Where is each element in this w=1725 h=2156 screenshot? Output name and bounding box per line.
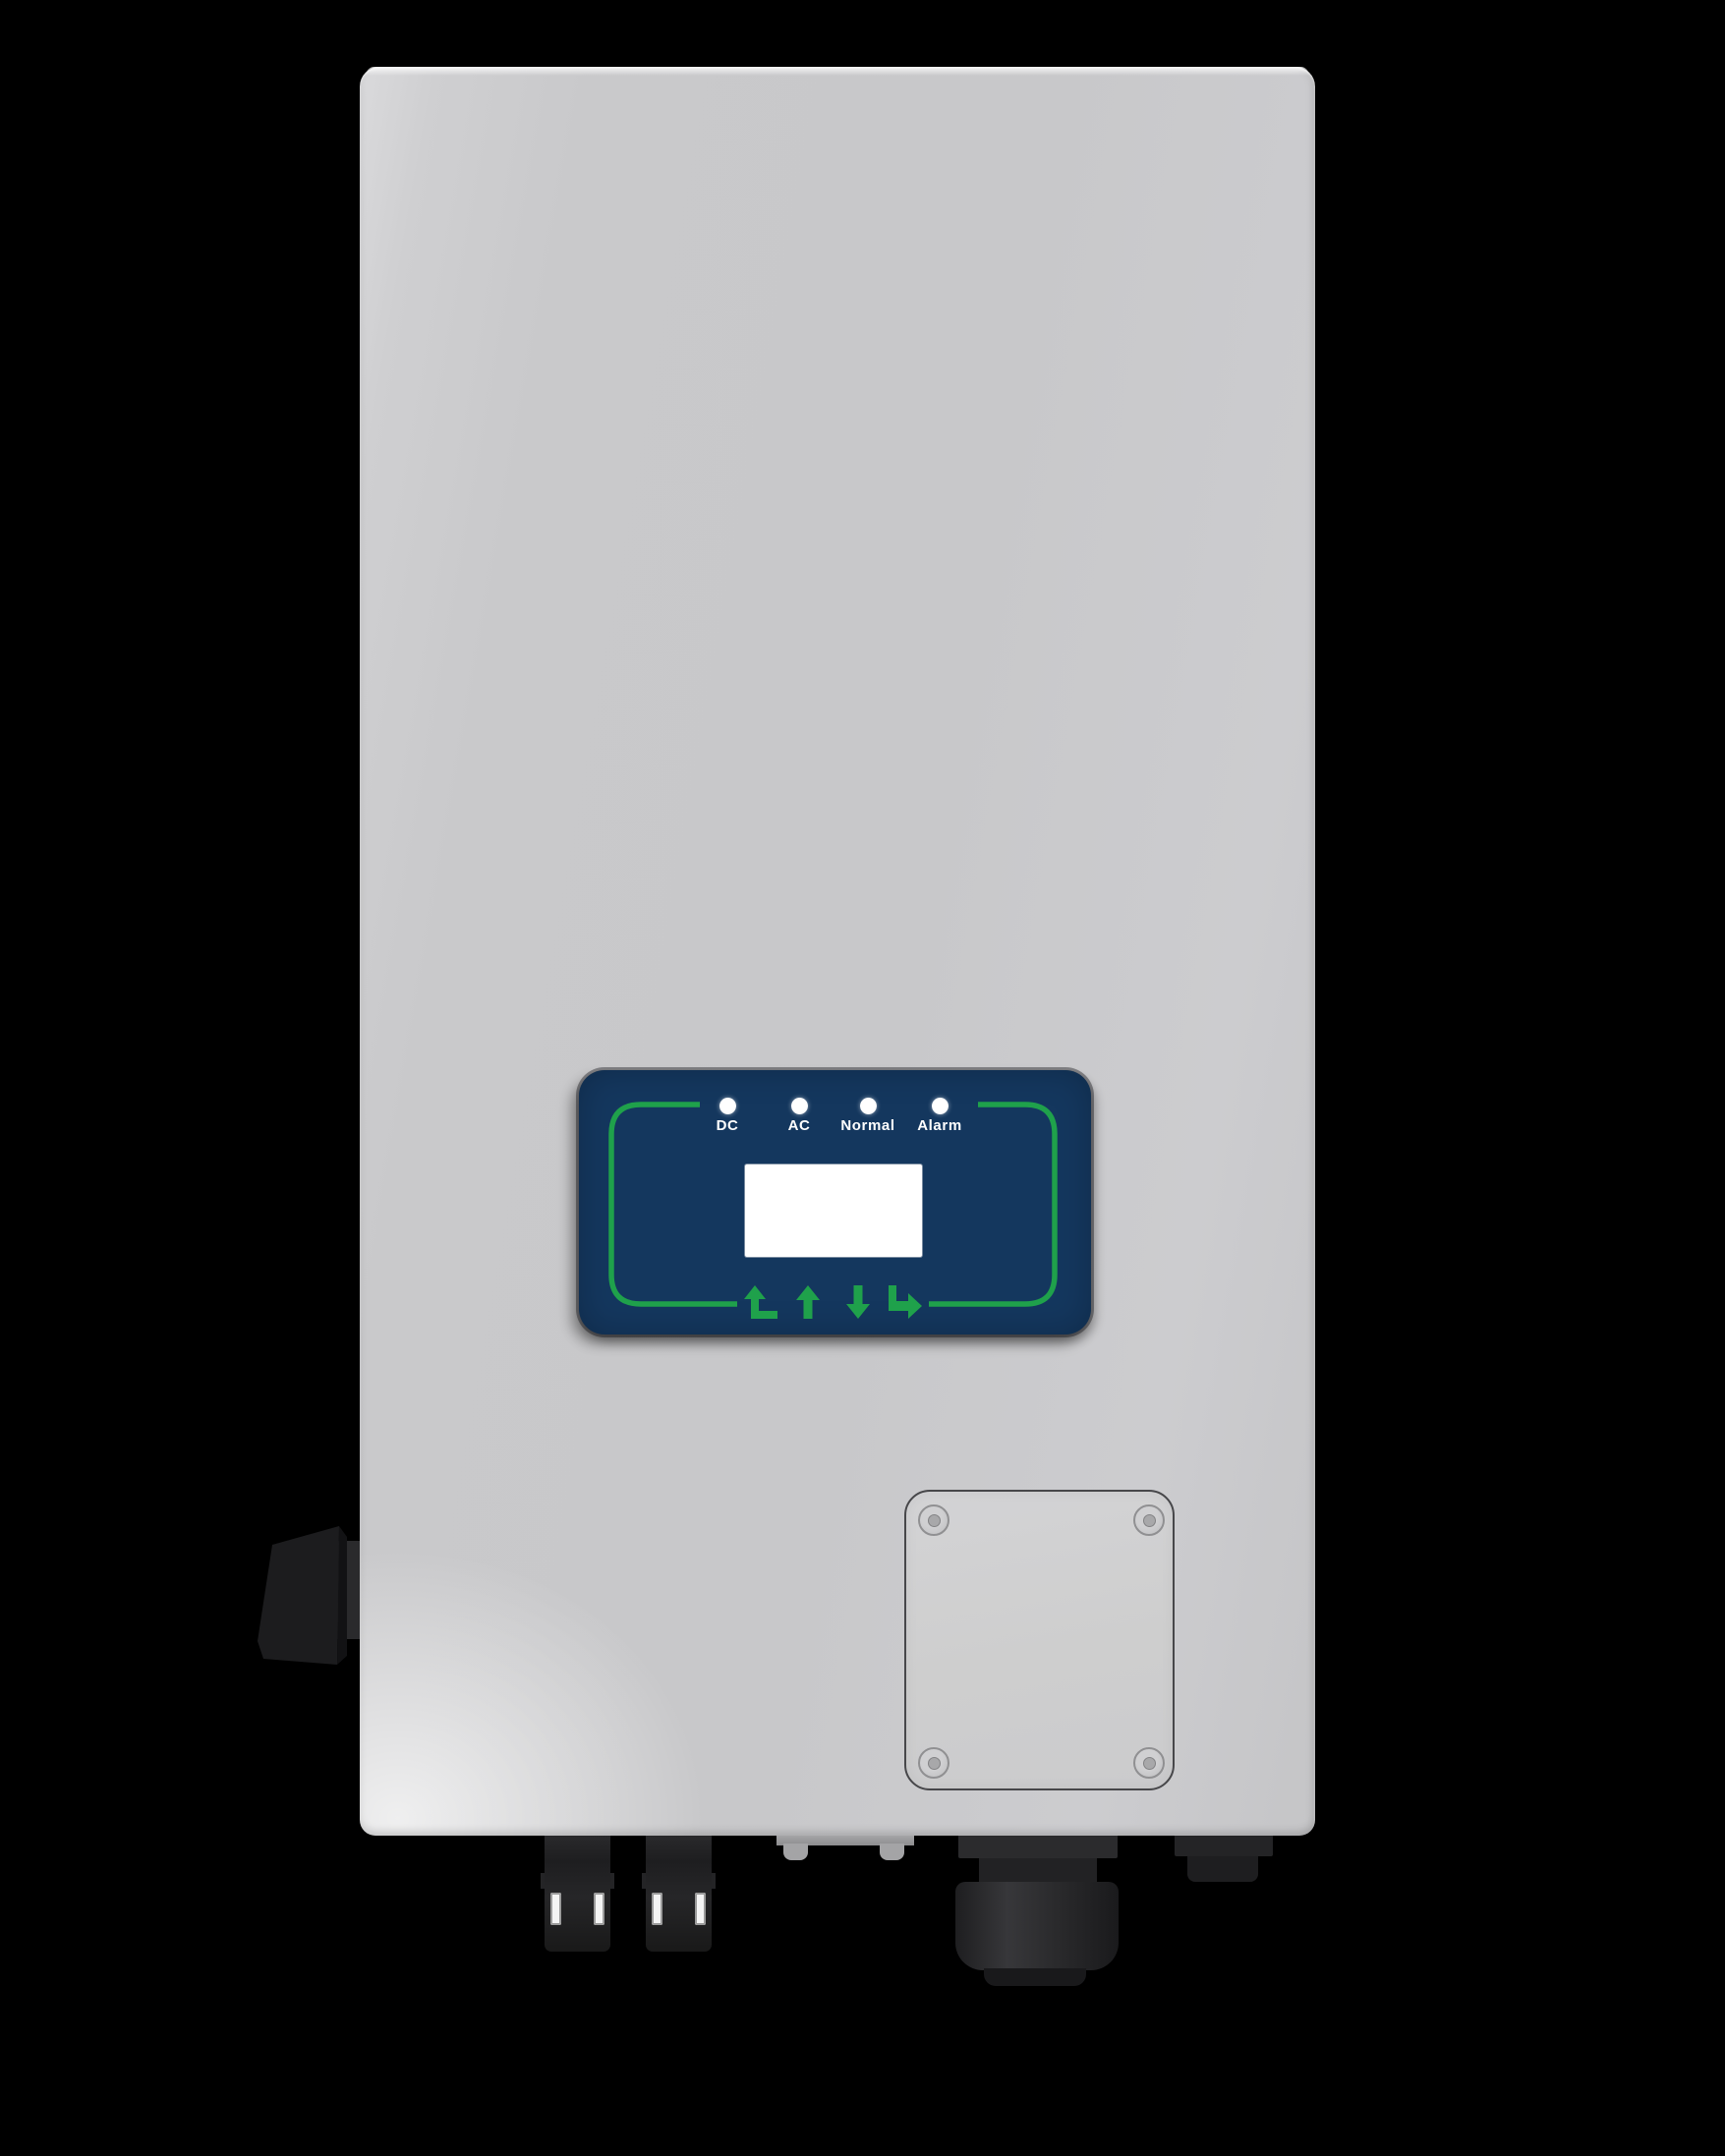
led-indicator-icon [860, 1098, 877, 1114]
connector-clip-slot [594, 1893, 604, 1925]
enter-key[interactable] [889, 1285, 922, 1321]
vent-rail-tab [880, 1844, 904, 1860]
screw-icon [918, 1747, 949, 1779]
led-indicator-icon [932, 1098, 949, 1114]
screw-icon [918, 1504, 949, 1536]
lcd-screen [745, 1164, 922, 1257]
down-arrow-icon [846, 1285, 870, 1319]
screw-icon [1133, 1504, 1165, 1536]
led-label: Normal [840, 1118, 894, 1133]
product-photo-background: DC AC Normal Alarm [0, 0, 1725, 2156]
back-arrow-icon [744, 1285, 777, 1319]
down-key[interactable] [846, 1285, 870, 1319]
dc-switch-knob[interactable] [246, 1518, 364, 1671]
led-label: AC [788, 1118, 811, 1133]
access-cover [904, 1490, 1175, 1790]
led-label: Alarm [917, 1118, 962, 1133]
inverter-body: DC AC Normal Alarm [360, 67, 1315, 1836]
back-key[interactable] [744, 1285, 777, 1319]
ac-cable-gland-neck [979, 1858, 1097, 1882]
ac-cable-gland-nut [955, 1882, 1119, 1970]
connector-clip-slot [695, 1893, 706, 1925]
dc-switch-face [258, 1526, 339, 1665]
led-alarm: Alarm [895, 1098, 984, 1133]
screw-icon [1133, 1747, 1165, 1779]
dc-connector-1 [545, 1830, 610, 1952]
connector-clip-slot [652, 1893, 662, 1925]
dc-connector-2 [646, 1830, 712, 1952]
display-panel: DC AC Normal Alarm [579, 1070, 1091, 1334]
up-key[interactable] [796, 1285, 820, 1319]
enter-arrow-icon [889, 1285, 922, 1321]
comm-connector-plug [1187, 1856, 1258, 1882]
up-arrow-icon [796, 1285, 820, 1319]
ac-cable-gland-cap [984, 1968, 1086, 1986]
led-label: DC [717, 1118, 739, 1133]
connector-clip-slot [550, 1893, 561, 1925]
led-indicator-icon [719, 1098, 736, 1114]
vent-rail-tab [783, 1844, 808, 1860]
led-indicator-icon [791, 1098, 808, 1114]
